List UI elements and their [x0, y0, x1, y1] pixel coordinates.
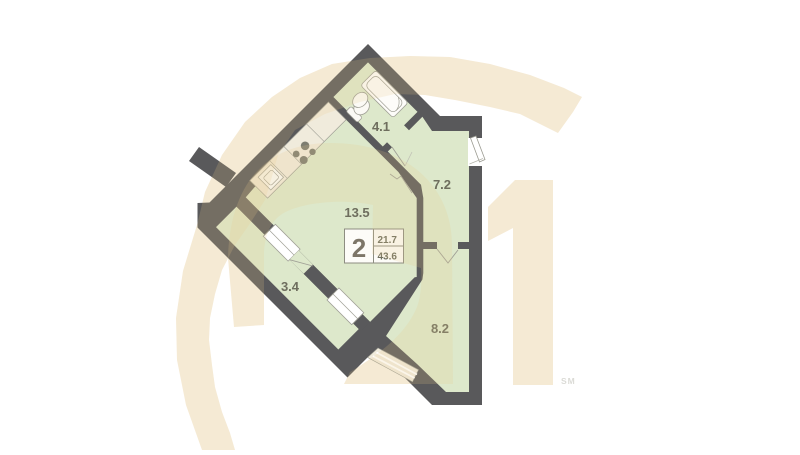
svg-text:4.1: 4.1 — [372, 119, 390, 134]
svg-text:13.5: 13.5 — [344, 205, 369, 220]
svg-text:2: 2 — [352, 233, 366, 263]
svg-text:SM: SM — [561, 376, 576, 386]
svg-text:7.2: 7.2 — [433, 177, 451, 192]
svg-text:3.4: 3.4 — [281, 279, 300, 294]
